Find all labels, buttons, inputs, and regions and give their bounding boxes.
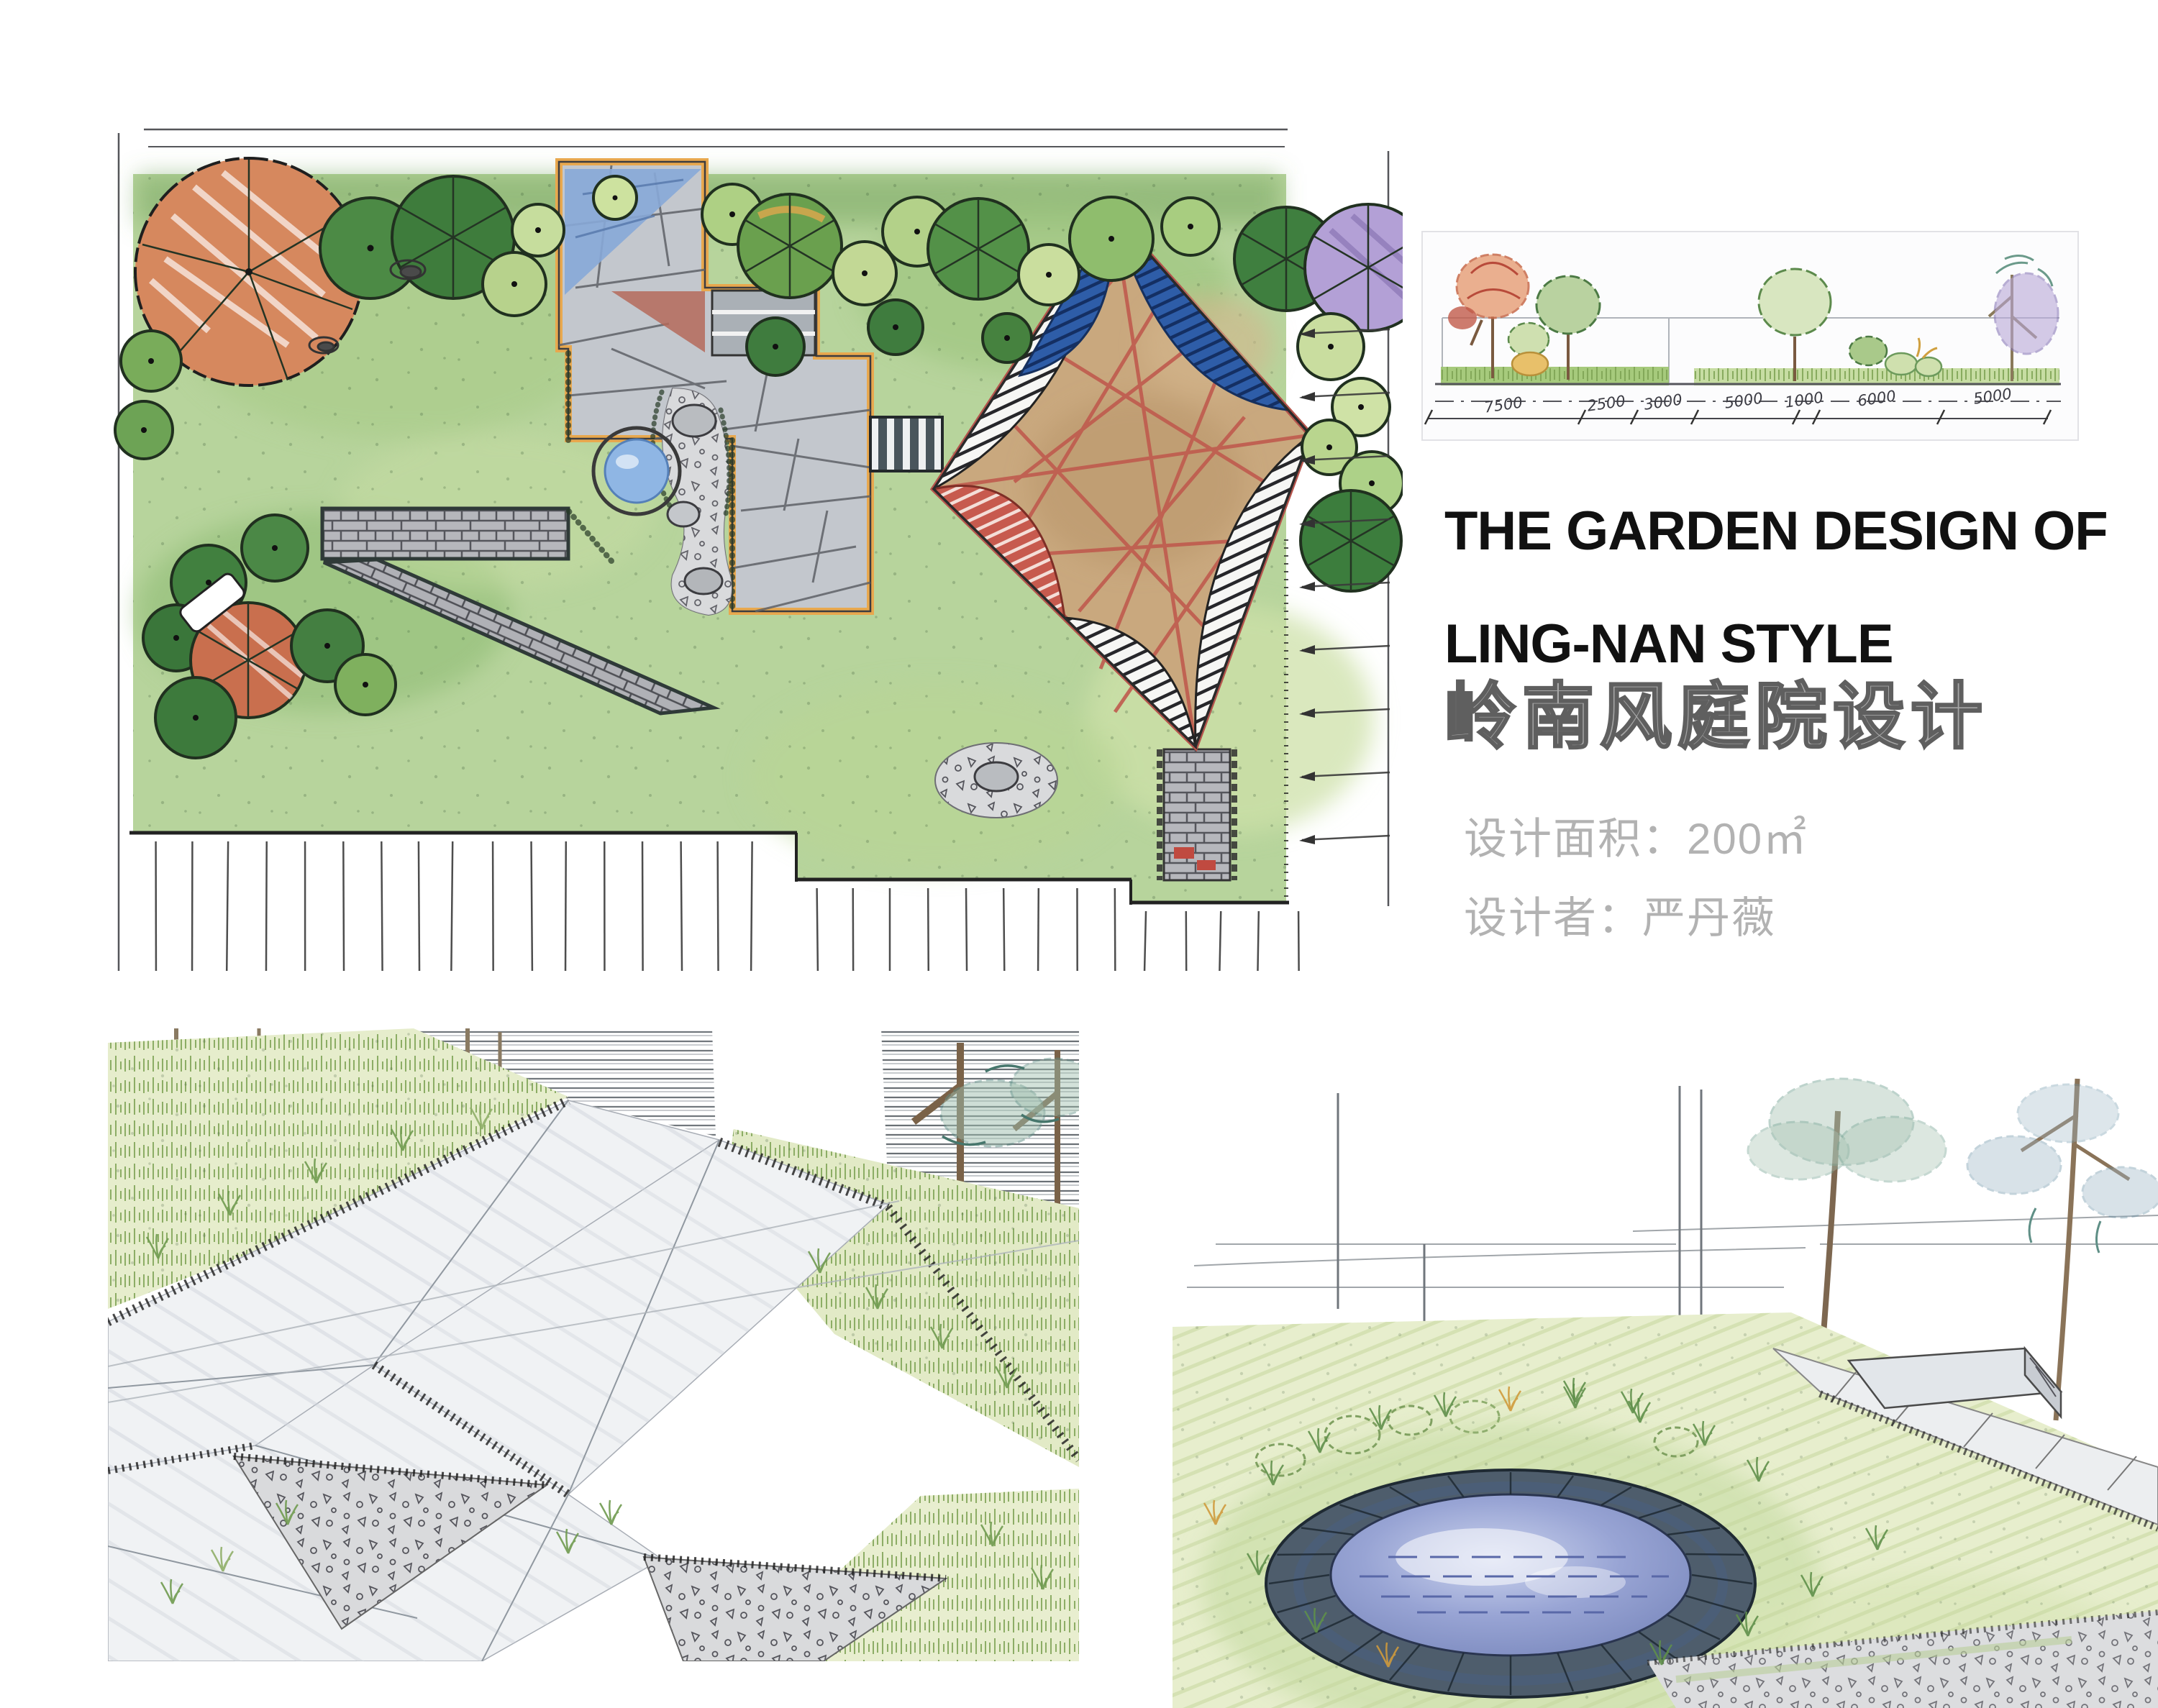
- perspective-pond-panel: [1173, 1028, 2158, 1708]
- presentation-board: 7500 2500 3000 5000 1000 6000 5000 THE G…: [0, 0, 2158, 1708]
- title-chinese: 岭南风庭院设计: [1444, 658, 1988, 762]
- pond-small: [593, 428, 680, 514]
- elevation-panel: 7500 2500 3000 5000 1000 6000 5000: [1421, 230, 2082, 446]
- brick-band: [322, 508, 568, 559]
- title-english-line1: THE GARDEN DESIGN OF: [1444, 500, 2108, 562]
- design-area-text: 设计面积：200㎡: [1464, 804, 1808, 867]
- garden-plan-panel: [108, 108, 1403, 971]
- slat-walk: [870, 417, 942, 471]
- perspective-paving-panel: [108, 1028, 1079, 1661]
- horizon-sketch-lines: [1187, 1215, 2158, 1287]
- background-poles: [1338, 1086, 1701, 1338]
- brick-path-south: [1160, 749, 1234, 880]
- designer-text: 设计者：严丹薇: [1464, 883, 1776, 946]
